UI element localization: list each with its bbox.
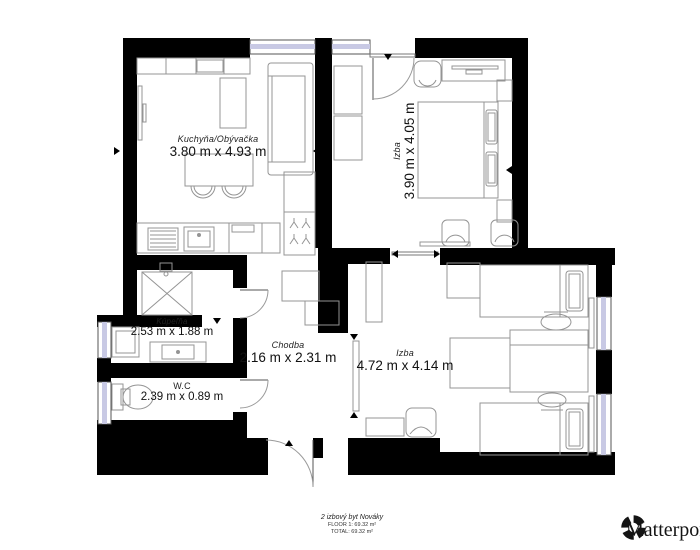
- floor-plan-canvas: Kuchyňa/Obývačka 3.80 m x 4.93 m Izba 3.…: [0, 0, 700, 550]
- matterport-logo: Matterport: [620, 514, 700, 546]
- furniture-wc: [112, 384, 153, 410]
- plan-title: 2 izbový byt Nováky: [252, 514, 452, 521]
- floor-area-line: FLOOR 1: 69.32 m²: [252, 522, 452, 528]
- furniture-kitchen-living: [137, 58, 315, 255]
- matterport-pinwheel-icon: [620, 514, 647, 541]
- shower-icon: [142, 263, 192, 315]
- toilet-icon: [112, 384, 153, 410]
- door-balcony-icon: [373, 58, 414, 100]
- washing-machine-icon: [112, 327, 139, 357]
- door-entrance-icon: [266, 440, 313, 487]
- nightstand-icon: [497, 200, 512, 222]
- door-wc-icon: [240, 380, 268, 408]
- chair-icon: [222, 186, 246, 198]
- partition-stub: [353, 341, 359, 411]
- nightstand-icon: [497, 80, 512, 101]
- dining-table-icon: [185, 154, 253, 186]
- wardrobe-icon: [366, 262, 382, 322]
- furniture-bedroom-top: [334, 60, 518, 246]
- window-icon: [597, 394, 611, 455]
- total-area-line: TOTAL: 69.32 m²: [252, 529, 452, 535]
- sliding-opening-threshold: [392, 252, 438, 255]
- window-icon: [250, 40, 315, 54]
- cabinet-icon: [447, 263, 480, 298]
- balcony-door-threshold: [370, 54, 415, 57]
- bed-icon: [480, 403, 588, 455]
- walls: [97, 38, 615, 475]
- bed-icon: [418, 102, 498, 198]
- tub-chair-icon: [406, 408, 436, 437]
- cabinet-icon: [334, 66, 362, 160]
- window-icon: [332, 40, 370, 54]
- door-bathroom-icon: [240, 290, 268, 318]
- cabinet-row-icon: [137, 58, 250, 74]
- coffee-table-icon: [220, 78, 246, 128]
- sink-icon: [184, 227, 214, 251]
- window-icon: [597, 297, 611, 350]
- chair-icon: [191, 186, 215, 198]
- wardrobe-icon: [284, 212, 315, 255]
- sofa-icon: [268, 63, 313, 175]
- office-chair-icon: [541, 312, 571, 330]
- window-icon: [98, 382, 111, 424]
- tv-board-icon: [138, 86, 146, 140]
- desk-icon: [442, 60, 505, 81]
- plan-footer: 2 izbový byt Nováky FLOOR 1: 69.32 m² TO…: [252, 514, 452, 535]
- floor-plan-drawing: [0, 0, 700, 550]
- sink-vanity-icon: [150, 342, 206, 362]
- tall-cabinet-icon: [284, 172, 315, 212]
- bed-icon: [480, 265, 588, 317]
- office-chair-icon: [414, 61, 441, 87]
- window-icon: [98, 322, 111, 358]
- radiator-icon: [589, 298, 594, 348]
- desk-icon: [450, 330, 588, 392]
- bench-icon: [366, 418, 404, 436]
- radiator-icon: [589, 396, 594, 452]
- furniture-bedroom-bottom: [366, 262, 594, 455]
- cabinet-icon: [282, 271, 319, 301]
- office-chair-icon: [538, 393, 566, 410]
- stove-icon: [148, 228, 178, 250]
